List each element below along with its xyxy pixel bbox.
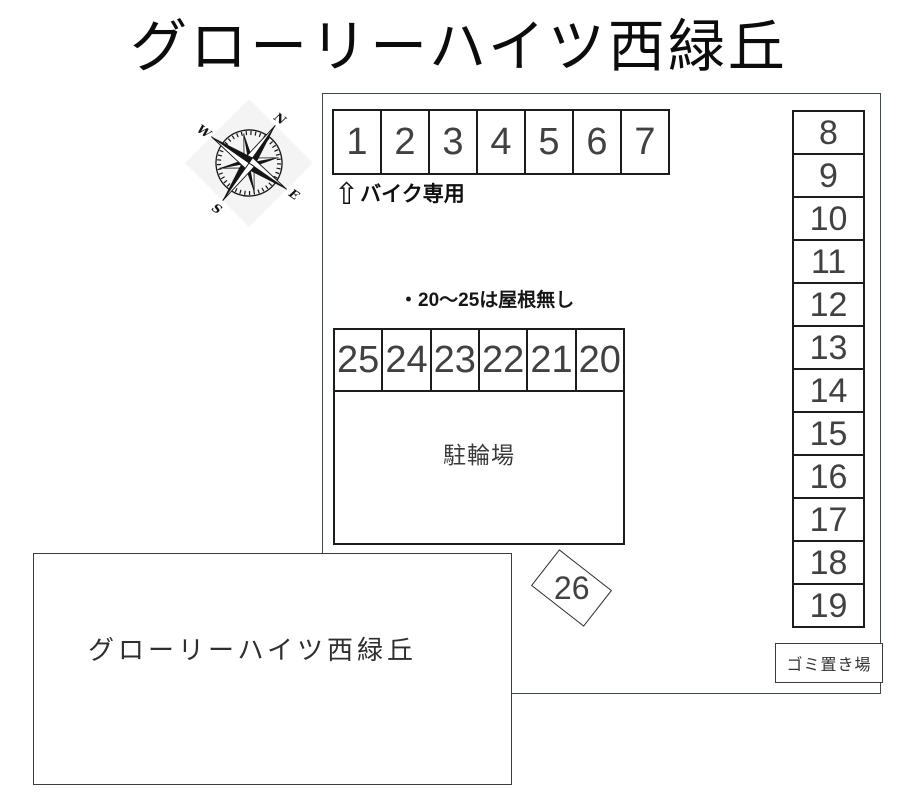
building-outline: グローリーハイツ西緑丘 — [33, 553, 512, 785]
parking-space-26-label: 26 — [554, 572, 590, 604]
garbage-area: ゴミ置き場 — [775, 643, 883, 683]
parking-space-3: 3 — [430, 111, 478, 173]
bike-parking-row: 1 2 3 4 5 6 7 — [332, 109, 670, 175]
uncovered-parking-row: 25 24 23 22 21 20 — [333, 328, 625, 392]
no-roof-note: ・20〜25は屋根無し — [399, 285, 574, 312]
parking-space-2: 2 — [382, 111, 430, 173]
parking-space-14: 14 — [794, 370, 863, 413]
parking-space-17: 17 — [794, 499, 863, 542]
parking-space-19: 19 — [794, 585, 863, 626]
parking-space-5: 5 — [526, 111, 574, 173]
parking-space-22: 22 — [480, 330, 528, 390]
bicycle-parking-area: 駐輪場 — [333, 390, 625, 545]
compass-east-label: E — [285, 186, 302, 204]
parking-space-1: 1 — [334, 111, 382, 173]
parking-space-24: 24 — [383, 330, 431, 390]
parking-space-4: 4 — [478, 111, 526, 173]
parking-space-16: 16 — [794, 456, 863, 499]
parking-space-20: 20 — [577, 330, 623, 390]
parking-space-8: 8 — [794, 112, 863, 155]
page-title: グローリーハイツ西緑丘 — [0, 1, 918, 83]
right-parking-column: 8 9 10 11 12 13 14 15 16 17 18 19 — [792, 110, 865, 628]
bike-only-caption: ⇧ バイク専用 — [334, 177, 465, 212]
garbage-area-label: ゴミ置き場 — [786, 651, 871, 675]
parking-space-7: 7 — [622, 111, 668, 173]
parking-space-25: 25 — [335, 330, 383, 390]
up-arrow-icon: ⇧ — [334, 177, 359, 212]
parking-space-13: 13 — [794, 327, 863, 370]
compass-south-label: S — [209, 201, 224, 218]
bike-only-label: バイク専用 — [360, 177, 465, 212]
parking-space-9: 9 — [794, 155, 863, 198]
parking-space-10: 10 — [794, 198, 863, 241]
compass-rose-icon: N E S W — [184, 98, 314, 228]
parking-space-12: 12 — [794, 284, 863, 327]
site-plan-canvas: グローリーハイツ西緑丘 — [0, 0, 918, 801]
parking-space-21: 21 — [528, 330, 576, 390]
parking-space-6: 6 — [574, 111, 622, 173]
parking-space-18: 18 — [794, 542, 863, 585]
parking-space-15: 15 — [794, 413, 863, 456]
bicycle-parking-label: 駐輪場 — [443, 436, 515, 470]
building-label: グローリーハイツ西緑丘 — [88, 630, 417, 667]
parking-space-23: 23 — [432, 330, 480, 390]
parking-space-11: 11 — [794, 241, 863, 284]
